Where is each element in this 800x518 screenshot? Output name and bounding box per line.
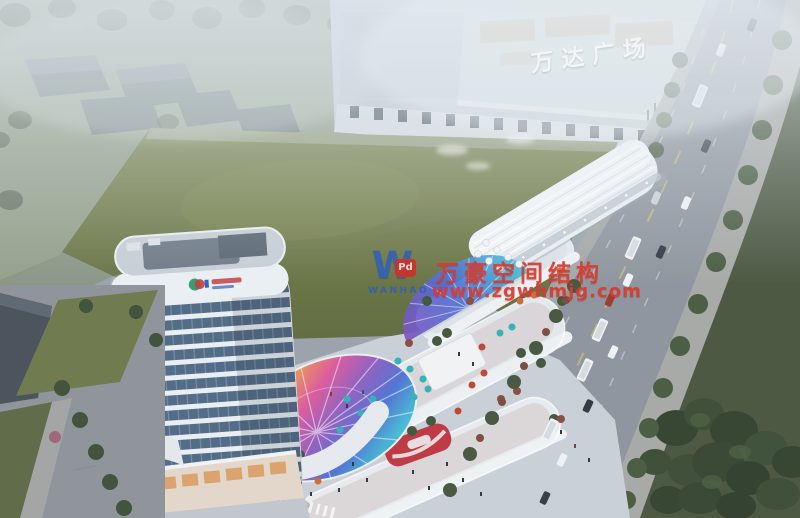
logo-name-text: WANHAO [368, 286, 429, 296]
rendering-canvas: 万达广场 W Pd WANHAO 万豪空间结构 www.zgwhmjg.com [0, 0, 800, 518]
watermark-website-text: www.zgwhmjg.com [432, 281, 642, 302]
watermark-logo: W Pd WANHAO [368, 252, 430, 304]
logo-badge: Pd [395, 259, 416, 277]
